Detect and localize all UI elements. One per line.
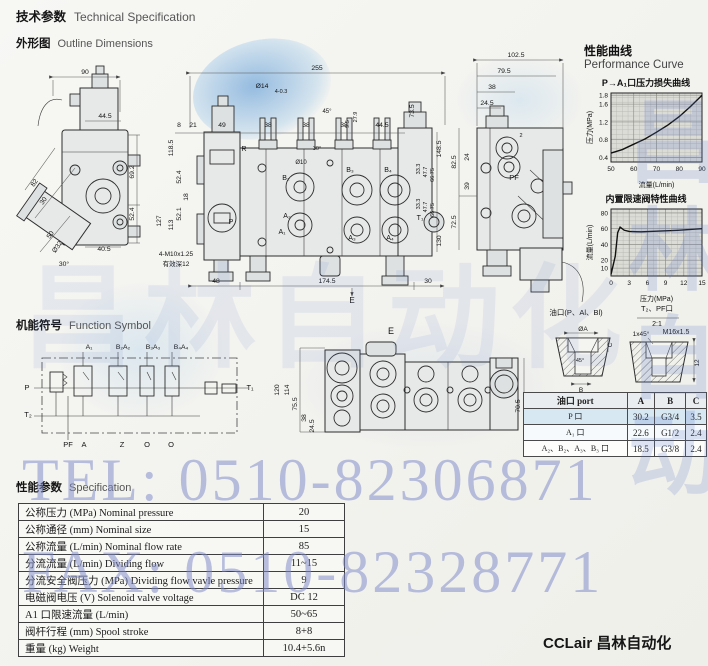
svg-text:40: 40 [601,242,609,249]
dimension-label: 72.5 [451,215,458,228]
dimension-label: 114 [284,384,291,395]
row-value: 11~15 [264,555,345,572]
dimension-label: 有效深12 [163,259,190,268]
svg-text:70: 70 [653,166,661,173]
svg-text:1.2: 1.2 [599,119,608,126]
row-value: 2.4 [686,425,707,441]
row-value: 30.2 [627,409,655,425]
svg-text:9: 9 [664,280,668,287]
outline-heading-zh: 外形图 [16,38,51,50]
outline-heading-en: Outline Dimensions [58,38,153,50]
dimension-label: T₂ [24,410,32,419]
dimension-label: O [144,440,150,449]
page-header: 技术参数Technical Specification [16,6,195,26]
dimension-label: E [388,326,394,336]
dimension-label: 21 [189,122,197,129]
performance-heading-zh: 性能曲线 [584,42,684,59]
port-table-header: 油口 port A B C [524,393,707,409]
dimension-label: 2:1 [652,321,662,328]
dimension-label: 39 [464,182,471,190]
dimension-label: 1x45° [633,330,650,338]
dimension-label: A [81,440,86,449]
dimension-label: 50 [46,230,56,240]
dimension-label: 24 [464,153,471,161]
dimension-label: 82 [30,178,40,188]
function-symbol-heading-zh: 机能符号 [16,320,62,332]
decor-blob [290,320,560,450]
function-symbol-heading: 机能符号Function Symbol [16,316,151,334]
datasheet-page: 技术参数Technical Specification 外形图Outline D… [0,0,708,666]
dimension-label: 120 [274,384,281,396]
watermark-brand-chars: 昌林自动化 [22,228,632,390]
dimension-label: 33.3 [416,164,422,175]
row-label: P 口 [524,409,628,425]
dimension-label: B₃ [346,167,354,174]
dimension-label: 69.2 [129,165,136,178]
dimension-label: Ø10 [295,160,307,166]
table-row: 公称压力 (MPa) Nominal pressure20 [19,504,345,521]
spec-heading-en: Specification [69,482,131,494]
dimension-label: B₂ [282,175,290,182]
brand-footer: CCLair 昌林自动化 [543,632,671,653]
performance-heading-en: Performance Curve [584,59,684,71]
port-table: 油口 port A B C P 口30.2G3/43.5A₁ 口22.6G1/2… [523,392,707,457]
row-value: 20 [264,504,345,521]
dimension-label: A₂ [283,213,291,220]
dimension-label: T₁ [417,215,424,222]
dimension-label: 30° [313,146,321,152]
dimension-label: 38 [340,122,348,129]
logo-blob [182,25,342,154]
row-value: 8+8 [264,623,345,640]
dimension-label: 90 [81,69,89,76]
dimension-label: 47.7 [423,202,429,213]
table-row: 分流流量 (L/min) Dividing flow11~15 [19,555,345,572]
dimension-label: 127 [156,215,163,227]
dimension-label: 27.9 [353,112,359,123]
svg-text:压力(MPa): 压力(MPa) [640,294,673,303]
table-row: 电磁阀电压 (V) Solenoid valve voltageDC 12 [19,589,345,606]
dimension-label: P [229,219,234,226]
outline-heading: 外形图Outline Dimensions [16,34,153,52]
row-value: 15 [264,521,345,538]
svg-text:80: 80 [676,166,684,173]
dimension-label: B₃A₃ [146,344,161,351]
dimension-label: B₄ [384,167,392,174]
left-view: 9044.569.252.440.5823050Ø3230° [17,66,140,268]
row-value: DC 12 [264,589,345,606]
table-row: A₁ 口22.6G1/22.4 [524,425,707,441]
dimension-label: 44.5 [98,113,111,120]
row-value: 18.5 [627,441,655,457]
row-value: 85 [264,538,345,555]
dimension-label: A₁ [86,344,94,351]
row-label: 阀杆行程 (mm) Spool stroke [19,623,264,640]
port-sections: 油口(P、Al、Bl)T₂、PF口2:1ØAC45°B1x45°M16x1.51… [549,304,701,394]
row-value: 9 [264,572,345,589]
dimension-label: 66.75 [430,168,436,182]
dimension-label: 113 [168,219,175,230]
row-value: G1/2 [655,425,686,441]
dimension-label: 4-0.3 [275,89,288,95]
port-col-c: C [686,393,707,409]
dimension-label: 18 [183,193,190,201]
dimension-label: 24.5 [480,100,493,107]
table-row: 分流安全阀压力 (MPa) Dividing flow vavle pressu… [19,572,345,589]
dimension-label: A₁ [278,229,286,236]
table-row: A₂、B₂、A₃、B₃ 口18.5G3/82.4 [524,441,707,457]
dimension-label: ØA [578,326,588,333]
dimension-label: R [241,146,246,153]
spec-heading-zh: 性能参数 [16,482,62,494]
svg-text:0.4: 0.4 [599,155,608,162]
row-value: 2.4 [686,441,707,457]
dimension-label: 9.5 [345,120,351,128]
dimension-label: P [24,383,29,392]
svg-text:压力(MPa): 压力(MPa) [585,111,594,144]
dimension-label: M16x1.5 [663,329,690,336]
dimension-label: 24.5 [309,419,316,432]
dimension-label: 48 [212,278,220,285]
dimension-label: 47.7 [423,167,429,178]
dimension-label: 70.5 [515,399,522,412]
svg-text:50: 50 [607,166,615,173]
table-row: 公称通径 (mm) Nominal size15 [19,521,345,538]
dimension-label: 118.5 [168,140,175,157]
dimension-label: 75.5 [292,397,299,410]
dimension-label: 30° [59,260,70,268]
dimension-label: 38 [302,122,310,129]
dimension-label: 33.3 [416,199,422,210]
row-label: 公称流量 (L/min) Nominal flow rate [19,538,264,555]
chart-canvas: 036912151020406080压力(MPa)流量(L/min) [584,204,708,304]
row-label: 公称压力 (MPa) Nominal pressure [19,504,264,521]
dimension-label: PF [63,440,73,449]
svg-text:60: 60 [601,226,609,233]
dimension-label: 174.5 [318,278,335,285]
svg-text:60: 60 [630,166,638,173]
dimension-label: 49 [218,122,226,129]
function-symbol-heading-en: Function Symbol [69,320,151,332]
row-value: G3/8 [655,441,686,457]
dimension-label: 73.5 [409,104,416,117]
row-label: A₂、B₂、A₃、B₃ 口 [524,441,628,457]
function-symbol-diagram: A₁B₂A₂B₃A₃B₄A₄PT₁T₂PFAZOO [24,344,254,449]
row-value: 22.6 [627,425,655,441]
svg-text:80: 80 [601,210,609,217]
dimension-label: C [607,342,614,347]
svg-text:6: 6 [646,280,650,287]
dimension-label: 66.75 [430,203,436,217]
row-label: A1 口限速流量 (L/min) [19,606,264,623]
dimension-label: 82.5 [451,155,458,168]
svg-text:流量(L/min): 流量(L/min) [585,225,594,261]
port-col-a: A [627,393,655,409]
dimension-label: A₃ [348,235,356,242]
speed-limit-chart: 036912151020406080压力(MPa)流量(L/min) [584,204,708,309]
dimension-label: 12 [694,359,701,367]
dimension-label: 38 [488,84,496,91]
row-value: 3.5 [686,409,707,425]
dimension-label: A₄ [386,235,394,242]
dimension-label: PF [509,173,519,182]
table-row: 重量 (kg) Weight10.4+5.6n [19,640,345,657]
svg-text:90: 90 [698,166,706,173]
spec-heading: 性能参数Specification [16,478,131,496]
decor-blob [55,280,225,420]
dimension-label: 30 [39,196,49,206]
svg-text:0.8: 0.8 [599,137,608,144]
dimension-label: 44.5 [375,122,388,129]
dimension-label: Ø14 [256,83,269,90]
dimension-label: 38 [264,122,272,129]
port-col-b: B [655,393,686,409]
dimension-label: 30 [424,278,432,285]
dimension-label: 8 [177,122,181,129]
dimension-label: 52.1 [176,207,183,220]
row-label: 公称通径 (mm) Nominal size [19,521,264,538]
svg-text:15: 15 [698,280,706,287]
performance-heading: 性能曲线 Performance Curve [584,42,684,71]
dimension-label: 52.4 [129,207,136,220]
svg-text:0: 0 [609,280,613,287]
svg-text:12: 12 [680,280,688,287]
row-value: 50~65 [264,606,345,623]
row-value: G3/4 [655,409,686,425]
table-row: A1 口限速流量 (L/min)50~65 [19,606,345,623]
row-label: A₁ 口 [524,425,628,441]
right-view: 102.579.53824.582.5243972.5PF2 [451,52,583,302]
dimension-label: O [168,440,174,449]
row-value: 10.4+5.6n [264,640,345,657]
e-view: E12011475.53824.570.5 [274,326,524,433]
dimension-label: 45° [576,358,584,364]
dimension-label: Ø32 [51,240,64,255]
dimension-label: 102.5 [507,52,524,59]
decor-blob [455,55,585,145]
table-row: 公称流量 (L/min) Nominal flow rate85 [19,538,345,555]
row-label: 分流安全阀压力 (MPa) Dividing flow vavle pressu… [19,572,264,589]
row-label: 重量 (kg) Weight [19,640,264,657]
dimension-label: E [349,296,354,305]
dimension-label: B₂A₂ [116,344,131,351]
dimension-label: B₄A₄ [174,344,189,351]
dimension-label: 52.4 [176,170,183,183]
svg-text:流量(L/min): 流量(L/min) [639,180,675,189]
svg-text:3: 3 [627,280,631,287]
chart-canvas: 50607080900.40.81.21.61.8流量(L/min)压力(MPa… [584,88,708,190]
table-row: 阀杆行程 (mm) Spool stroke8+8 [19,623,345,640]
dimension-label: T₁ [246,383,254,392]
svg-text:20: 20 [601,258,609,265]
table-row: P 口30.2G3/43.5 [524,409,707,425]
port-col-port: 油口 port [524,393,628,409]
dimension-label: 148.5 [436,140,443,157]
row-label: 电磁阀电压 (V) Solenoid valve voltage [19,589,264,606]
dimension-label: 255 [311,65,323,72]
dimension-label: 130 [436,235,443,247]
row-label: 分流流量 (L/min) Dividing flow [19,555,264,572]
dimension-label: 40.5 [97,246,110,253]
svg-text:10: 10 [601,266,609,273]
svg-text:1.6: 1.6 [599,102,608,109]
dimension-label: Z [120,440,125,449]
dimension-label: 2 [519,133,522,139]
svg-text:1.8: 1.8 [599,93,608,100]
dimension-label: 38 [301,414,308,422]
pressure-loss-chart: 50607080900.40.81.21.61.8流量(L/min)压力(MPa… [584,88,708,195]
page-title-zh: 技术参数 [16,10,66,24]
dimension-label: 79.5 [497,68,510,75]
dimension-label: 4-M10x1.25 [159,251,194,258]
dimension-label: 45° [322,109,332,115]
spec-table: 公称压力 (MPa) Nominal pressure20公称通径 (mm) N… [18,503,345,657]
page-title-en: Technical Specification [74,10,195,24]
middle-view: 2558214938383844.5Ø144-0.345°Ø1030°9.527… [156,65,445,305]
